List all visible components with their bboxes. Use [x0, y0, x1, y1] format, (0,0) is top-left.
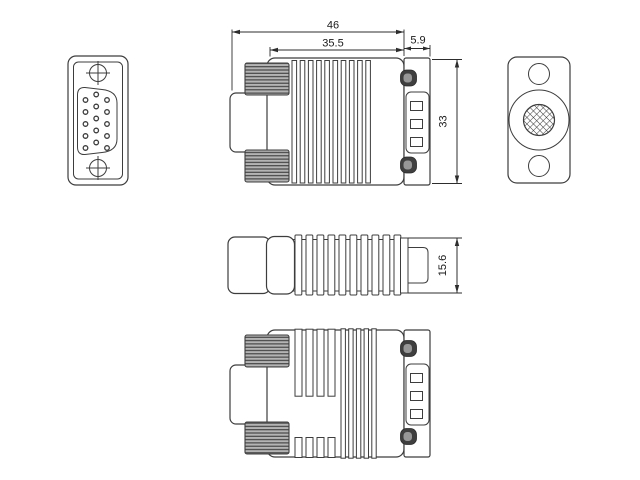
top-view-front-body [267, 237, 295, 295]
thumbscrew-bottom [245, 150, 289, 182]
bottom-screw-post-top [401, 341, 417, 357]
technical-drawing-page: 46 35.5 5.9 33 [0, 0, 640, 480]
side-view [230, 58, 430, 185]
thumbscrew-top [245, 63, 289, 95]
thumbscrew-top [245, 335, 289, 367]
top-view-shell [228, 237, 270, 294]
top-view [228, 235, 428, 295]
bottom-shell-profile [230, 365, 270, 424]
dimension-body-length: 35.5 [270, 38, 404, 57]
contact-slots [411, 102, 423, 147]
front-shell-profile [230, 93, 270, 152]
rear-knurled-circle [524, 105, 555, 136]
dimension-body-width: 33 [432, 60, 462, 184]
screw-post-bottom [401, 157, 417, 173]
technical-drawing-canvas: 46 35.5 5.9 33 [0, 0, 640, 480]
bottom-contact-slots [411, 374, 423, 419]
dim-label-body-thickness: 15.6 [437, 255, 449, 276]
screw-post-top [401, 70, 417, 86]
dim-label-rear-length: 5.9 [410, 35, 425, 47]
dim-label-body-width: 33 [438, 115, 450, 127]
top-view-rear-connector [408, 248, 428, 284]
front-view [68, 56, 128, 185]
dim-label-body-length: 35.5 [322, 38, 343, 50]
dim-label-overall-length: 46 [327, 20, 339, 32]
rear-screw-hole-top [529, 64, 550, 85]
dimension-rear-length: 5.9 [404, 35, 430, 57]
bottom-view [230, 329, 430, 458]
bottom-screw-post-bottom [401, 429, 417, 445]
top-view-rear-stub [401, 238, 409, 293]
rear-screw-hole-bottom [529, 156, 550, 177]
rear-view [508, 57, 570, 183]
thumbscrew-bottom [245, 422, 289, 454]
